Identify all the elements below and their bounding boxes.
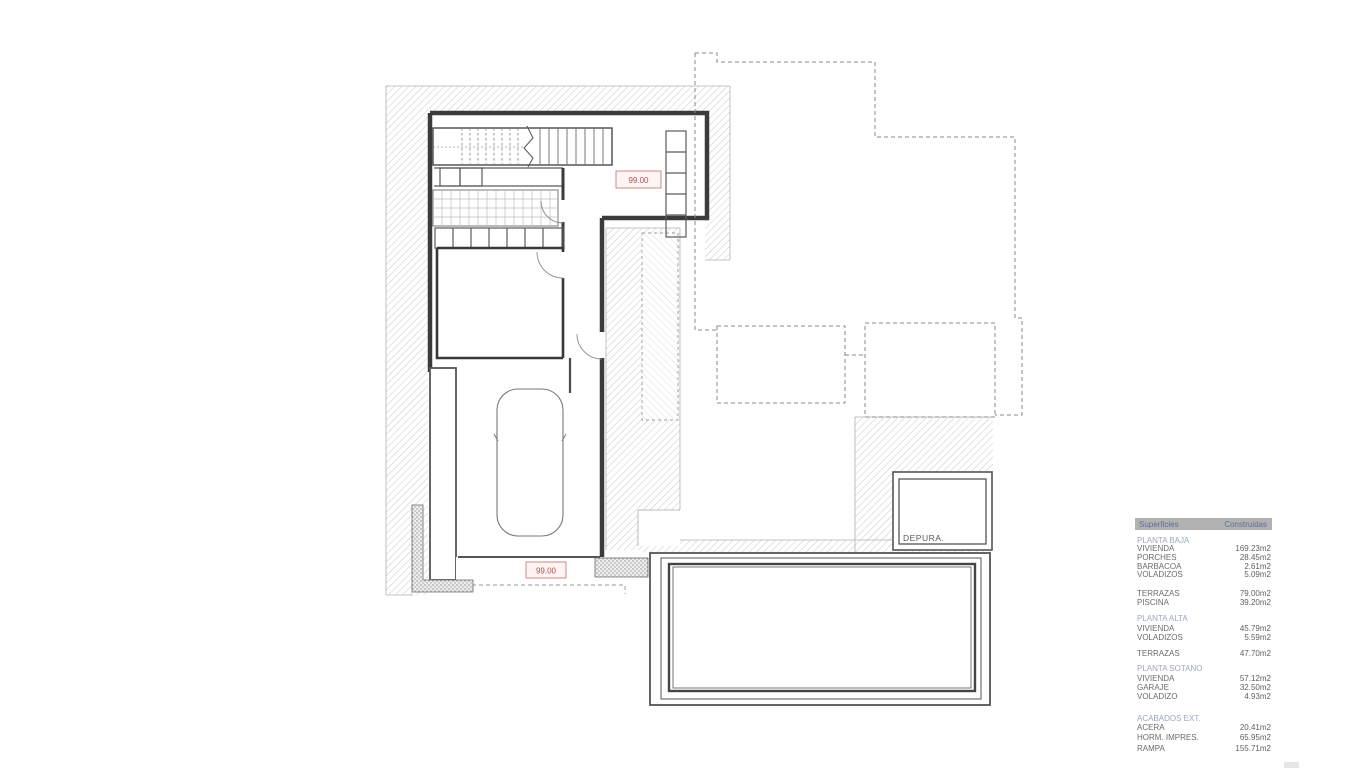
depura-room: DEPURA. <box>893 472 992 550</box>
legend-section: PLANTA SOTANO <box>1135 664 1272 673</box>
legend-row: ACERA20.41m2 <box>1135 724 1272 733</box>
legend-row: PISCINA39.20m2 <box>1135 599 1272 608</box>
legend-row: HORM. IMPRES.65.95m2 <box>1135 734 1272 743</box>
upper-floor-dashed-outline <box>695 53 1022 417</box>
tiled-storage-area <box>433 190 558 226</box>
legend-row: RAMPA155.71m2 <box>1135 745 1272 754</box>
ramp-strip <box>430 368 456 580</box>
overhang-dashed-strip <box>642 233 678 420</box>
pool <box>650 553 990 705</box>
level-label-hall-text: 99.00 <box>628 176 649 185</box>
legend-row: VOLADIZOS5.59m2 <box>1135 634 1272 643</box>
legend-row: TERRAZAS47.70m2 <box>1135 650 1272 659</box>
legend-section: PLANTA ALTA <box>1135 614 1272 623</box>
car <box>494 389 566 536</box>
legend-header: Superficies Construidas <box>1135 518 1272 530</box>
terrace-dashed-rect-1 <box>717 326 845 403</box>
legend-col-superficies: Superficies <box>1139 520 1179 529</box>
legend-section: ACABADOS EXT. <box>1135 714 1272 723</box>
depura-label: DEPURA. <box>903 533 944 543</box>
concrete-wall-right <box>595 558 648 577</box>
level-label-driveway-text: 99.00 <box>536 567 557 576</box>
corner-logo-mark <box>1284 762 1299 768</box>
legend-row: VOLADIZO4.93m2 <box>1135 693 1272 702</box>
level-label-hall: 99.00 <box>616 171 661 188</box>
legend-row: VOLADIZOS5.09m2 <box>1135 571 1272 580</box>
surfaces-legend: Superficies Construidas PLANTA BAJA VIVI… <box>1135 518 1272 754</box>
landing-cutout <box>638 510 680 546</box>
legend-col-construidas: Construidas <box>1224 520 1267 529</box>
staircase <box>433 126 612 167</box>
level-label-driveway: 99.00 <box>526 562 566 578</box>
terrace-dashed-rect-2 <box>865 323 995 417</box>
floor-plan-page: { "plan": { "labels": { "level_hall": "9… <box>0 0 1366 768</box>
